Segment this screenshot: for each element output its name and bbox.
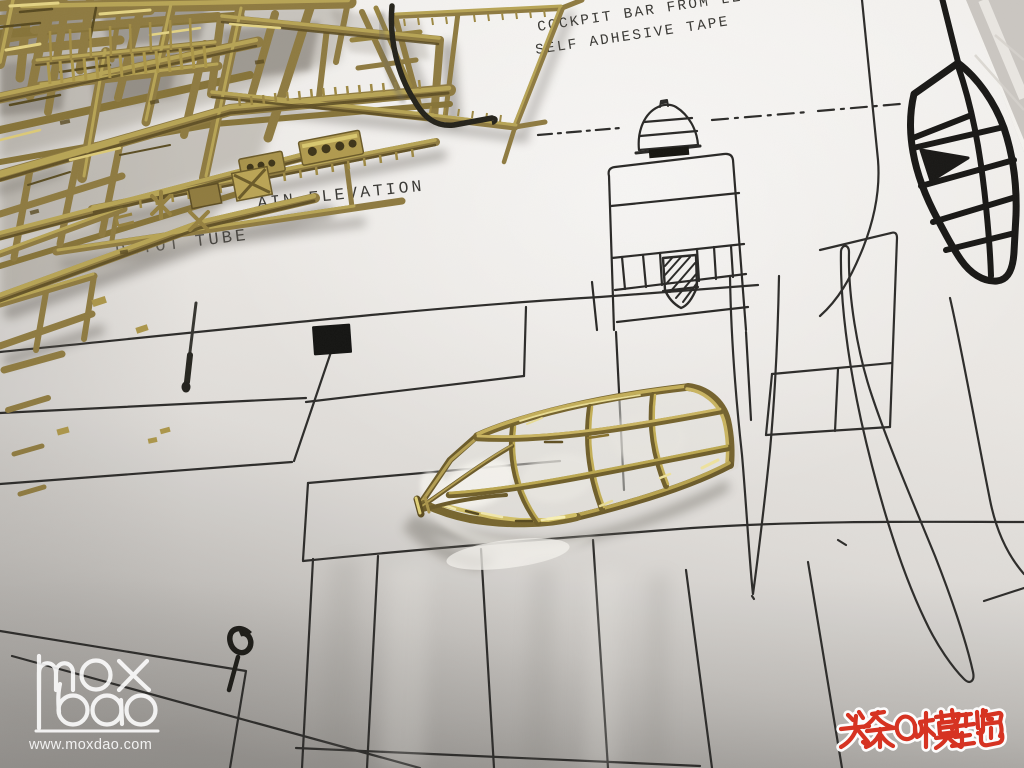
svg-text:www.moxdao.com: www.moxdao.com	[28, 737, 152, 753]
